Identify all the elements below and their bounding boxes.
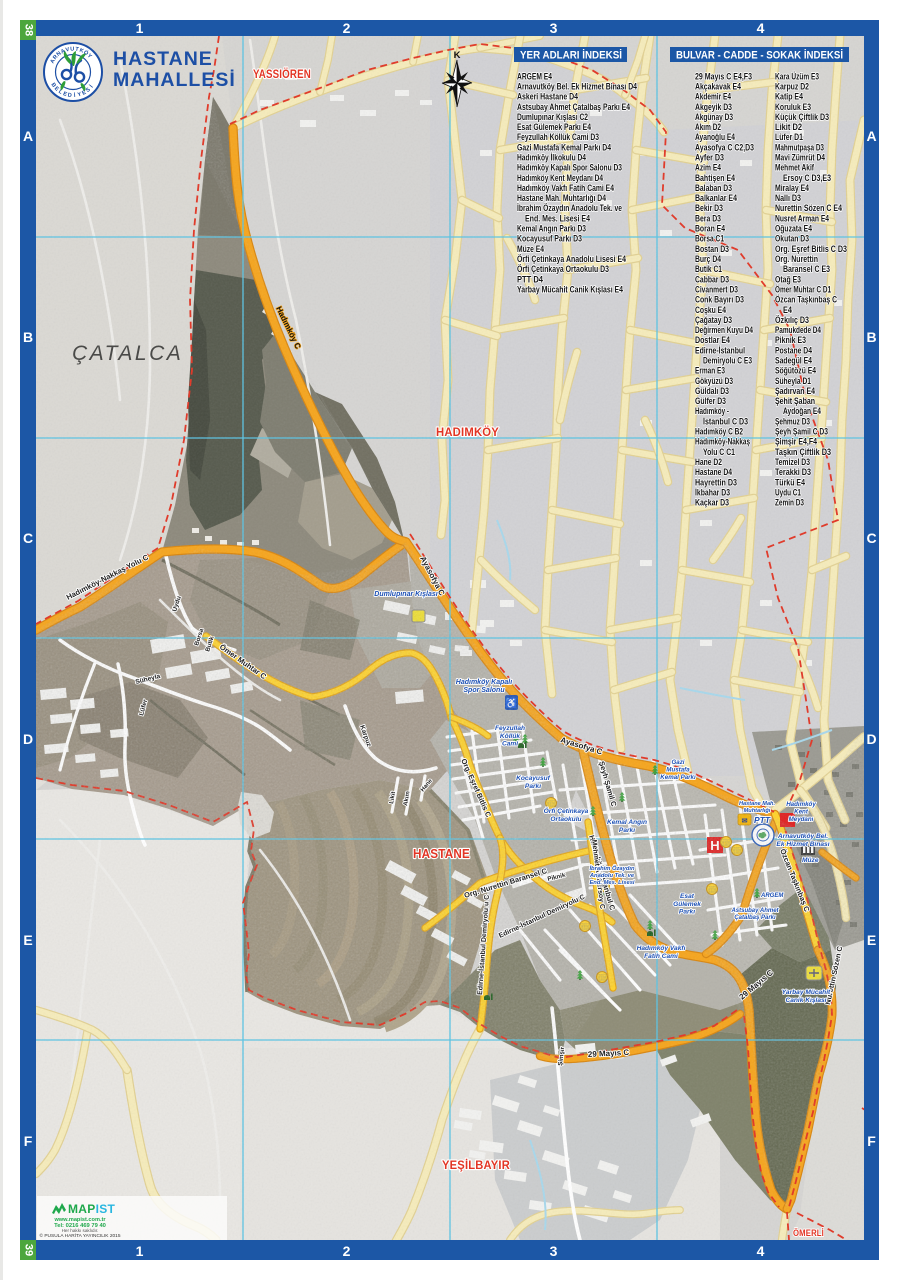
svg-text:2: 2 xyxy=(343,1243,351,1259)
svg-text:Kemal Parkı: Kemal Parkı xyxy=(660,774,696,781)
svg-text:İbrahim Özaydın Anadolu Tek. v: İbrahim Özaydın Anadolu Tek. ve xyxy=(517,203,622,213)
svg-text:Oğuzata E4: Oğuzata E4 xyxy=(775,224,813,234)
svg-text:Küçük Çiftlik D3: Küçük Çiftlik D3 xyxy=(775,112,829,122)
svg-text:Pamukdede D4: Pamukdede D4 xyxy=(775,325,822,335)
svg-text:Balaban D3: Balaban D3 xyxy=(695,183,732,193)
svg-text:Akgünay D3: Akgünay D3 xyxy=(695,112,733,122)
svg-text:Şehmuz D3: Şehmuz D3 xyxy=(775,416,810,426)
svg-text:Gökyüzü D3: Gökyüzü D3 xyxy=(695,376,733,386)
svg-text:İstanbul C D3: İstanbul C D3 xyxy=(703,416,748,426)
svg-text:Akdemir E4: Akdemir E4 xyxy=(695,92,732,102)
svg-text:A: A xyxy=(23,128,33,144)
svg-text:Şimşir E4,F4: Şimşir E4,F4 xyxy=(775,437,818,447)
svg-text:Ersoy C D3,E3: Ersoy C D3,E3 xyxy=(783,173,831,183)
svg-text:Hadımköy -: Hadımköy - xyxy=(695,406,729,416)
svg-text:E4: E4 xyxy=(783,305,793,315)
svg-text:Hadımköy Kapalı: Hadımköy Kapalı xyxy=(456,679,512,686)
svg-text:Cami: Cami xyxy=(502,741,518,748)
svg-text:3: 3 xyxy=(550,20,558,36)
svg-text:Baransel C E3: Baransel C E3 xyxy=(783,264,830,274)
svg-text:Örfi Çetinkaya Ortaokulu D3: Örfi Çetinkaya Ortaokulu D3 xyxy=(517,264,609,274)
svg-text:Hadımköy İlkokulu D4: Hadımköy İlkokulu D4 xyxy=(517,153,587,163)
svg-text:K: K xyxy=(454,50,461,61)
svg-text:Otağ E3: Otağ E3 xyxy=(775,274,801,284)
svg-text:C: C xyxy=(866,530,876,546)
svg-text:ÖMERLİ: ÖMERLİ xyxy=(793,1228,824,1239)
svg-text:F: F xyxy=(24,1133,33,1149)
svg-text:Şehit Şaban: Şehit Şaban xyxy=(775,396,815,406)
svg-text:Cabbar D3: Cabbar D3 xyxy=(695,274,729,284)
svg-text:Mustafa: Mustafa xyxy=(666,766,690,773)
svg-text:Mahmutpaşa D3: Mahmutpaşa D3 xyxy=(775,142,824,152)
svg-text:Anadolu Tek. ve: Anadolu Tek. ve xyxy=(589,873,635,879)
svg-text:D: D xyxy=(67,93,72,100)
svg-text:Türkü E4: Türkü E4 xyxy=(775,477,806,487)
svg-text:End. Mes. Lisesi E4: End. Mes. Lisesi E4 xyxy=(525,213,591,223)
svg-text:Ayasofya C C2,D3: Ayasofya C C2,D3 xyxy=(695,142,754,152)
svg-text:Postane D4: Postane D4 xyxy=(775,345,813,355)
svg-text:Demiryolu C E3: Demiryolu C E3 xyxy=(703,356,752,366)
svg-text:E: E xyxy=(867,932,876,948)
svg-text:Esat: Esat xyxy=(680,893,695,900)
svg-text:Likit D2: Likit D2 xyxy=(775,122,802,132)
svg-text:1: 1 xyxy=(136,1243,144,1259)
svg-text:Terakki D3: Terakki D3 xyxy=(775,467,811,477)
svg-text:B: B xyxy=(23,329,33,345)
svg-text:Hadımköy-Nakkaş: Hadımköy-Nakkaş xyxy=(695,437,750,447)
svg-text:38: 38 xyxy=(23,24,35,36)
svg-text:Ortaokulu: Ortaokulu xyxy=(550,816,581,823)
svg-text:Org. Nurettin: Org. Nurettin xyxy=(775,254,818,264)
svg-text:Feyzullah Köllük Cami D3: Feyzullah Köllük Cami D3 xyxy=(517,132,599,142)
svg-text:HADIMKÖY: HADIMKÖY xyxy=(436,426,499,439)
svg-text:A: A xyxy=(866,128,876,144)
svg-text:Piknik E3: Piknik E3 xyxy=(775,335,806,345)
svg-text:Müze: Müze xyxy=(802,857,819,864)
svg-text:Nurettin Sözen C E4: Nurettin Sözen C E4 xyxy=(775,203,843,213)
svg-text:Akgeyik D3: Akgeyik D3 xyxy=(695,102,732,112)
svg-text:Hadımköy: Hadımköy xyxy=(786,801,816,808)
svg-text:Özcan Taşkınbaş C: Özcan Taşkınbaş C xyxy=(775,295,837,305)
svg-text:Akım D2: Akım D2 xyxy=(695,122,721,132)
svg-text:D: D xyxy=(866,731,876,747)
svg-text:Her hakkı saklıdır.: Her hakkı saklıdır. xyxy=(62,1228,99,1233)
svg-text:Örfi Çetinkaya: Örfi Çetinkaya xyxy=(544,806,589,815)
svg-text:Edirne-İstanbul: Edirne-İstanbul xyxy=(695,345,745,355)
svg-text:2: 2 xyxy=(343,20,351,36)
svg-text:İkbahar D3: İkbahar D3 xyxy=(695,488,730,498)
svg-text:Muhtarlığı: Muhtarlığı xyxy=(744,808,771,814)
svg-text:Canik Kışlası: Canik Kışlası xyxy=(785,997,826,1004)
svg-text:Akçakavak E4: Akçakavak E4 xyxy=(695,82,742,92)
svg-text:29 Mayıs C E4,F3: 29 Mayıs C E4,F3 xyxy=(695,71,752,81)
svg-text:Arnavutköy Bel.: Arnavutköy Bel. xyxy=(777,833,828,840)
svg-text:Hadımköy Kapalı Spor Salonu D3: Hadımköy Kapalı Spor Salonu D3 xyxy=(517,163,622,173)
svg-text:YEŞİLBAYIR: YEŞİLBAYIR xyxy=(442,1159,510,1172)
svg-text:Yolu C C1: Yolu C C1 xyxy=(703,447,735,457)
svg-text:1: 1 xyxy=(136,20,144,36)
svg-text:Kocayusuf Parkı D3: Kocayusuf Parkı D3 xyxy=(517,234,582,244)
svg-text:Hastane Mah. Muhtarlığı D4: Hastane Mah. Muhtarlığı D4 xyxy=(517,193,607,203)
svg-text:Ayfer D3: Ayfer D3 xyxy=(695,153,724,163)
svg-text:4: 4 xyxy=(757,20,765,36)
svg-text:Parkı: Parkı xyxy=(619,827,635,834)
svg-text:Meydanı: Meydanı xyxy=(789,816,814,823)
svg-text:Bostan D3: Bostan D3 xyxy=(695,244,729,254)
svg-text:Butik C1: Butik C1 xyxy=(695,264,722,274)
svg-text:Kemal Angın Parkı D3: Kemal Angın Parkı D3 xyxy=(517,224,586,234)
svg-text:Hadımköy C B2: Hadımköy C B2 xyxy=(695,427,743,437)
svg-text:Dumlupınar Kışlası C2: Dumlupınar Kışlası C2 xyxy=(517,112,588,122)
svg-text:D: D xyxy=(23,731,33,747)
svg-text:Gazi Mustafa Kemal Parkı D4: Gazi Mustafa Kemal Parkı D4 xyxy=(517,142,612,152)
svg-text:Ayanoğlu E4: Ayanoğlu E4 xyxy=(695,132,736,142)
svg-text:Nusret Arman E4: Nusret Arman E4 xyxy=(775,213,830,223)
svg-text:Parkı: Parkı xyxy=(525,783,541,790)
svg-text:Gülemek: Gülemek xyxy=(673,901,701,908)
svg-text:Boran E4: Boran E4 xyxy=(695,224,726,234)
svg-text:© PUSULA HARİTA YAYINCILIK 201: © PUSULA HARİTA YAYINCILIK 2015 xyxy=(39,1232,120,1239)
svg-text:Şeyh Şamil C D3: Şeyh Şamil C D3 xyxy=(775,427,828,437)
svg-text:Spor Salonu: Spor Salonu xyxy=(463,687,505,694)
svg-text:E: E xyxy=(23,932,32,948)
svg-text:Astsubay Ahmet Çatalbaş Parkı: Astsubay Ahmet Çatalbaş Parkı E4 xyxy=(517,102,631,112)
svg-text:Lüfer D1: Lüfer D1 xyxy=(775,132,803,142)
svg-text:Uydu C1: Uydu C1 xyxy=(775,488,801,498)
svg-text:Dumlupınar Kışlası: Dumlupınar Kışlası xyxy=(374,591,437,598)
svg-text:ARGEM: ARGEM xyxy=(760,893,784,899)
svg-text:U: U xyxy=(70,46,74,52)
svg-text:PTT D4: PTT D4 xyxy=(517,274,544,284)
svg-text:Zemin D3: Zemin D3 xyxy=(775,498,804,508)
svg-text:Aydoğan E4: Aydoğan E4 xyxy=(783,406,822,416)
svg-text:YER ADLARI İNDEKSİ: YER ADLARI İNDEKSİ xyxy=(520,49,622,62)
svg-text:Org. Eşref Bitlis C D3: Org. Eşref Bitlis C D3 xyxy=(775,244,847,254)
svg-text:Temizel D3: Temizel D3 xyxy=(775,457,810,467)
svg-text:Güldalı D3: Güldalı D3 xyxy=(695,386,729,396)
svg-text:Bekir D3: Bekir D3 xyxy=(695,203,723,213)
svg-text:Yarbay Mücahit: Yarbay Mücahit xyxy=(782,989,831,996)
svg-text:Hane D2: Hane D2 xyxy=(695,457,722,467)
svg-text:Çağatay D3: Çağatay D3 xyxy=(695,315,732,325)
svg-text:PTT: PTT xyxy=(754,815,771,825)
svg-text:MAHALLESİ: MAHALLESİ xyxy=(113,68,236,91)
svg-text:Karpuz D2: Karpuz D2 xyxy=(775,82,809,92)
svg-text:Kemal Angın: Kemal Angın xyxy=(607,819,647,826)
svg-text:Feyzullah: Feyzullah xyxy=(495,725,525,732)
svg-text:Arnavutköy Bel. Ek Hizmet Bina: Arnavutköy Bel. Ek Hizmet Binası D4 xyxy=(517,82,638,92)
svg-text:Taşkın Çiftlik D3: Taşkın Çiftlik D3 xyxy=(775,447,831,457)
svg-text:3: 3 xyxy=(550,1243,558,1259)
svg-text:Özkılıç D3: Özkılıç D3 xyxy=(775,315,809,325)
svg-text:Kocayusuf: Kocayusuf xyxy=(516,775,551,782)
svg-text:Değirmen Kuyu D4: Değirmen Kuyu D4 xyxy=(695,325,754,335)
svg-text:Hayrettin D3: Hayrettin D3 xyxy=(695,477,737,487)
svg-text:Yarbay Mücahit Canik Kışlası E: Yarbay Mücahit Canik Kışlası E4 xyxy=(517,284,624,294)
svg-text:Erman E3: Erman E3 xyxy=(695,366,725,376)
svg-text:Bera D3: Bera D3 xyxy=(695,213,721,223)
svg-text:Nallı D3: Nallı D3 xyxy=(775,193,801,203)
svg-text:Mehmet Akif: Mehmet Akif xyxy=(775,163,815,173)
svg-text:Fatih Cami: Fatih Cami xyxy=(644,953,678,960)
svg-text:4: 4 xyxy=(757,1243,765,1259)
svg-text:Kent: Kent xyxy=(794,808,809,815)
svg-text:Civanmert D3: Civanmert D3 xyxy=(695,284,738,294)
svg-text:Ek Hizmet Binası: Ek Hizmet Binası xyxy=(776,841,829,848)
svg-text:HASTANE: HASTANE xyxy=(413,847,470,861)
svg-text:Parkı: Parkı xyxy=(679,909,695,916)
svg-text:Katip E4: Katip E4 xyxy=(775,92,804,102)
svg-text:Müze E4: Müze E4 xyxy=(517,244,545,254)
svg-text:Kara Üzüm E3: Kara Üzüm E3 xyxy=(775,71,819,81)
svg-text:ÇATALCA: ÇATALCA xyxy=(72,342,183,365)
svg-text:İbrahim Özaydın: İbrahim Özaydın xyxy=(589,865,635,872)
svg-text:Askeri Hastane D4: Askeri Hastane D4 xyxy=(517,92,579,102)
svg-text:Dostlar E4: Dostlar E4 xyxy=(695,335,731,345)
svg-text:Hadımköy Kent Meydanı D4: Hadımköy Kent Meydanı D4 xyxy=(517,173,604,183)
svg-text:Bahtişen E4: Bahtişen E4 xyxy=(695,173,736,183)
svg-text:Söğütözü E4: Söğütözü E4 xyxy=(775,366,817,376)
svg-text:Ömer Muhtar C D1: Ömer Muhtar C D1 xyxy=(775,284,831,294)
svg-text:Conk Bayırı D3: Conk Bayırı D3 xyxy=(695,295,744,305)
svg-text:Örfi Çetinkaya Anadolu Lisesi: Örfi Çetinkaya Anadolu Lisesi E4 xyxy=(517,254,627,264)
svg-text:Hadımköy Vakfı: Hadımköy Vakfı xyxy=(637,945,686,952)
svg-text:Esat Gülemek Parkı E4: Esat Gülemek Parkı E4 xyxy=(517,122,592,132)
svg-text:Kaçkar D3: Kaçkar D3 xyxy=(695,498,729,508)
svg-text:F: F xyxy=(867,1133,876,1149)
svg-text:Hastane Mah.: Hastane Mah. xyxy=(739,801,776,807)
svg-text:Gülfer D3: Gülfer D3 xyxy=(695,396,726,406)
svg-text:Borsa C1: Borsa C1 xyxy=(695,234,724,244)
svg-text:Mavi Zümrüt D4: Mavi Zümrüt D4 xyxy=(775,153,826,163)
svg-text:ARGEM E4: ARGEM E4 xyxy=(517,71,553,81)
svg-text:YASSIÖREN: YASSIÖREN xyxy=(253,68,311,81)
svg-text:Koruluk E3: Koruluk E3 xyxy=(775,102,811,112)
svg-text:HASTANE: HASTANE xyxy=(113,48,213,70)
svg-text:Gazi: Gazi xyxy=(671,759,684,766)
svg-text:39: 39 xyxy=(23,1244,35,1256)
svg-text:Çatalbaş Parkı: Çatalbaş Parkı xyxy=(734,915,776,921)
svg-text:Burç D4: Burç D4 xyxy=(695,254,722,264)
svg-text:Hastane D4: Hastane D4 xyxy=(695,467,733,477)
svg-text:End. Mes. Lisesi: End. Mes. Lisesi xyxy=(589,880,634,886)
svg-text:Astsubay Ahmet: Astsubay Ahmet xyxy=(730,908,779,914)
svg-text:Süheyla D1: Süheyla D1 xyxy=(775,376,811,386)
svg-text:Köllük: Köllük xyxy=(500,733,520,740)
svg-text:C: C xyxy=(23,530,33,546)
svg-text:B: B xyxy=(866,329,876,345)
svg-text:BULVAR - CADDE - SOKAK İNDEKSİ: BULVAR - CADDE - SOKAK İNDEKSİ xyxy=(676,49,843,62)
svg-text:MAPIST: MAPIST xyxy=(68,1202,116,1216)
svg-text:Coşku E4: Coşku E4 xyxy=(695,305,727,315)
svg-text:Balkanlar E4: Balkanlar E4 xyxy=(695,193,738,203)
svg-text:Sadegül E4: Sadegül E4 xyxy=(775,356,813,366)
svg-text:Miralay E4: Miralay E4 xyxy=(775,183,810,193)
svg-text:Hadımköy Vakfı Fatih Cami E4: Hadımköy Vakfı Fatih Cami E4 xyxy=(517,183,615,193)
svg-text:Okutan D3: Okutan D3 xyxy=(775,234,809,244)
svg-text:Şadırvan E4: Şadırvan E4 xyxy=(775,386,816,396)
svg-text:Azim E4: Azim E4 xyxy=(695,163,722,173)
